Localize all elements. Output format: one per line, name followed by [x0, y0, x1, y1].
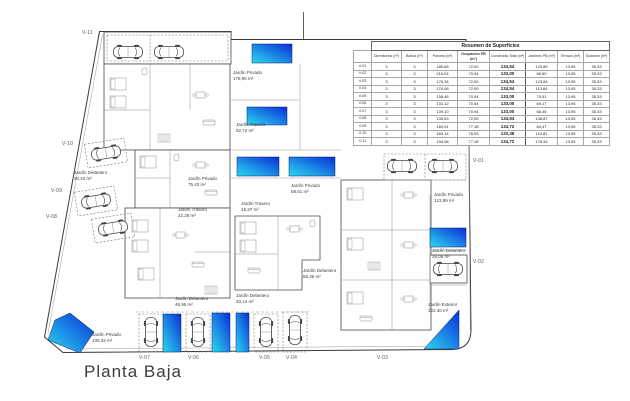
value-cell: 13,95	[558, 108, 584, 116]
column-header: Baños (nº)	[402, 51, 428, 63]
value-cell: 3	[402, 85, 428, 93]
garden-label-name: Jardín Privado	[188, 176, 217, 182]
value-cell: 175,34	[428, 78, 458, 86]
summary-table: Resumen de Superficies Dormitorios (nº)B…	[353, 41, 610, 146]
value-cell: 77,18	[458, 138, 490, 146]
bed-icon	[347, 188, 363, 200]
value-cell: 3	[402, 78, 428, 86]
value-cell: 13,95	[558, 123, 584, 131]
value-cell: 113,81	[526, 130, 558, 138]
summary-table-header-row: Dormitorios (nº)Baños (nº)Parcela (m²)Oc…	[354, 51, 610, 63]
road-label: V-06	[188, 355, 199, 361]
car-icon	[191, 318, 205, 347]
unit-id: V-01	[354, 63, 372, 71]
value-cell: 70,94	[458, 93, 490, 101]
garden-label: Jardín Privado130,32 m²	[92, 332, 121, 343]
garden-label-name: Jardín Trasero	[241, 201, 270, 207]
value-cell: 3	[402, 138, 428, 146]
pool	[212, 313, 230, 352]
garden-label: Jardín Delantero33,14 m²	[236, 293, 269, 304]
column-header: Dormitorios (nº)	[372, 51, 402, 63]
unit-id: V-04	[354, 85, 372, 93]
value-cell: 169,14	[428, 130, 458, 138]
unit-id: V-11	[354, 138, 372, 146]
garden-label: Jardín Privado179,95 m²	[233, 70, 262, 81]
road-label: V-10	[62, 141, 73, 147]
value-cell: 3	[372, 85, 402, 93]
unit-id: V-05	[354, 93, 372, 101]
value-cell: 3	[402, 130, 428, 138]
garden-label-area: 58,61 m²	[291, 189, 320, 195]
value-cell: 135,63	[428, 115, 458, 123]
garden-label: Jardín Trasero92,72 m²	[236, 122, 265, 133]
value-cell: 72,00	[458, 63, 490, 71]
value-cell: 35,33	[584, 78, 610, 86]
value-cell: 35,33	[584, 100, 610, 108]
bed-icon	[240, 222, 256, 234]
column-header	[354, 51, 372, 63]
building-block	[341, 180, 431, 330]
value-cell: 123,89	[526, 63, 558, 71]
value-cell: 3	[402, 123, 428, 131]
garden-label: Jardín Delantero46,95 m²	[175, 296, 208, 307]
garden-label-name: Jardín Delantero	[74, 170, 107, 176]
bed-icon	[138, 268, 154, 280]
garden-label-name: Jardín Privado	[434, 192, 463, 198]
value-cell: 216,04	[428, 70, 458, 78]
garden-label: Jardín Exterior122,40 m²	[428, 302, 457, 313]
value-cell: 68,50	[526, 70, 558, 78]
road-label: V-04	[286, 355, 297, 361]
value-cell: 3	[372, 93, 402, 101]
garden-label-name: Jardín Exterior	[428, 302, 457, 308]
value-cell: 35,33	[584, 130, 610, 138]
value-cell: 35,33	[584, 70, 610, 78]
value-cell: 3	[372, 70, 402, 78]
garden-label: Jardín Privado75,43 m²	[188, 176, 217, 187]
value-cell: 72,00	[458, 78, 490, 86]
road-label: V-09	[51, 188, 62, 194]
garden-label-area: 33,14 m²	[236, 299, 269, 305]
unit-id: V-09	[354, 123, 372, 131]
unit-id: V-06	[354, 100, 372, 108]
value-cell: 35,33	[584, 108, 610, 116]
column-header: Solarium (m²)	[584, 51, 610, 63]
garden-label-area: 92,72 m²	[236, 128, 265, 134]
table-row: V-0733139,1070,94133,0068,4613,9535,33	[354, 108, 610, 116]
value-cell: 3	[402, 93, 428, 101]
value-cell: 70,94	[458, 100, 490, 108]
bed-icon	[110, 78, 126, 90]
value-cell: 113,84	[526, 85, 558, 93]
pool	[289, 157, 335, 176]
road-label: V-05	[259, 355, 270, 361]
car-icon	[98, 219, 129, 238]
value-cell: 35,33	[584, 115, 610, 123]
value-cell: 3	[402, 70, 428, 78]
value-cell: 3	[372, 100, 402, 108]
value-cell: 13,95	[558, 93, 584, 101]
pool	[252, 44, 292, 63]
value-cell: 77,18	[458, 123, 490, 131]
table-row: V-0933169,0177,18134,7284,4713,9535,33	[354, 123, 610, 131]
unit-id: V-02	[354, 70, 372, 78]
value-cell: 131,12	[428, 100, 458, 108]
bed-icon	[140, 156, 156, 168]
car-icon	[259, 318, 273, 347]
bed-icon	[132, 220, 148, 232]
garden-label-name: Jardín Delantero	[432, 248, 465, 254]
bed-icon	[240, 240, 256, 252]
car-icon	[429, 159, 458, 173]
garden-label-name: Jardín Trasero	[236, 122, 265, 128]
value-cell: 76,53	[458, 130, 490, 138]
value-cell: 133,00	[490, 100, 526, 108]
value-cell: 3	[402, 63, 428, 71]
value-cell: 169,01	[428, 123, 458, 131]
value-cell: 134,72	[490, 123, 526, 131]
garden-label: Jardín Delantero35,05 m²	[432, 248, 465, 259]
garden-label-area: 46,95 m²	[175, 302, 208, 308]
garden-label-area: 75,43 m²	[188, 182, 217, 188]
garden-label: Jardín Trasero22,28 m²	[178, 207, 207, 218]
garden-label: Jardín Trasero19,37 m²	[241, 201, 270, 212]
value-cell: 70,94	[458, 108, 490, 116]
value-cell: 69,17	[526, 100, 558, 108]
sofa-icon	[248, 268, 260, 273]
sofa-icon	[192, 262, 204, 267]
table-title: Resumen de Superficies	[372, 42, 610, 51]
value-cell: 194,08	[428, 138, 458, 146]
value-cell: 133,00	[490, 70, 526, 78]
value-cell: 3	[402, 100, 428, 108]
value-cell: 180,68	[428, 63, 458, 71]
value-cell: 13,95	[558, 115, 584, 123]
road-label: V-01	[473, 158, 484, 164]
garden-label-area: 35,05 m²	[432, 254, 465, 260]
value-cell: 35,33	[584, 123, 610, 131]
unit-id: V-10	[354, 130, 372, 138]
unit-id: V-03	[354, 78, 372, 86]
garden-label-name: Jardín Delantero	[303, 268, 336, 274]
road-label: V-03	[377, 355, 388, 361]
value-cell: 75,51	[526, 93, 558, 101]
garden-label-area: 55,36 m²	[303, 274, 336, 280]
value-cell: 13,95	[558, 70, 584, 78]
column-header: Terraza (m²)	[558, 51, 584, 63]
value-cell: 35,33	[584, 138, 610, 146]
corner-cell	[354, 42, 372, 51]
value-cell: 133,00	[490, 108, 526, 116]
car-icon	[81, 192, 112, 211]
garden-label-name: Jardín Privado	[233, 70, 262, 76]
value-cell: 3	[372, 108, 402, 116]
value-cell: 13,95	[558, 63, 584, 71]
value-cell: 35,33	[584, 85, 610, 93]
table-row: V-0533158,4670,94133,0075,5113,9535,33	[354, 93, 610, 101]
road-label: V-11	[82, 30, 93, 36]
table-title-row: Resumen de Superficies	[354, 42, 610, 51]
value-cell: 35,33	[584, 93, 610, 101]
bed-icon	[347, 292, 363, 304]
sofa-icon	[360, 316, 372, 321]
value-cell: 13,95	[558, 78, 584, 86]
toilet-icon	[174, 154, 179, 161]
table-row: V-0133180,6872,00134,54123,8913,9535,33	[354, 63, 610, 71]
value-cell: 13,95	[558, 138, 584, 146]
table-row: V-0333175,3472,00134,54123,8413,9535,33	[354, 78, 610, 86]
floorplan-sheet: Resumen de Superficies Dormitorios (nº)B…	[0, 0, 630, 401]
garden-label-area: 19,37 m²	[241, 207, 270, 213]
value-cell: 134,54	[490, 85, 526, 93]
garden-label-area: 130,32 m²	[92, 338, 121, 344]
toilet-icon	[142, 68, 147, 75]
unit-id: V-08	[354, 115, 372, 123]
garden-label: Jardín Delantero30,24 m²	[74, 170, 107, 181]
value-cell: 68,46	[526, 108, 558, 116]
garden-label-name: Jardín Privado	[291, 183, 320, 189]
value-cell: 3	[372, 115, 402, 123]
unit-id: V-07	[354, 108, 372, 116]
value-cell: 35,33	[584, 63, 610, 71]
stairs-icon	[205, 286, 217, 294]
garden-label-area: 123,89 m²	[434, 198, 463, 204]
value-cell: 134,54	[490, 115, 526, 123]
garden-label-area: 122,40 m²	[428, 308, 457, 314]
pool	[236, 313, 249, 352]
garden-label: Jardín Privado58,61 m²	[291, 183, 320, 194]
garden-label-name: Jardín Privado	[92, 332, 121, 338]
value-cell: 170,08	[428, 85, 458, 93]
car-icon	[288, 316, 302, 345]
stairs-icon	[368, 262, 380, 270]
road-label: V-07	[139, 355, 150, 361]
table-row: V-1133194,0877,18134,72178,4413,9535,33	[354, 138, 610, 146]
table-row: V-0233216,0470,94133,0068,5013,9535,33	[354, 70, 610, 78]
garden-label-area: 30,24 m²	[74, 176, 107, 182]
value-cell: 3	[372, 138, 402, 146]
column-header: Jardines PB (m²)	[526, 51, 558, 63]
table-row: V-0833135,6372,00134,54138,8713,9535,33	[354, 115, 610, 123]
pool	[48, 313, 94, 353]
car-icon	[388, 159, 417, 173]
plan-title: Planta Baja	[84, 362, 182, 382]
value-cell: 13,95	[558, 130, 584, 138]
value-cell: 3	[372, 130, 402, 138]
value-cell: 138,87	[526, 115, 558, 123]
pool	[237, 157, 279, 176]
pool	[430, 228, 466, 247]
value-cell: 70,94	[458, 70, 490, 78]
pool	[163, 314, 181, 352]
value-cell: 72,00	[458, 85, 490, 93]
bed-icon	[132, 240, 148, 252]
column-header: Parcela (m²)	[428, 51, 458, 63]
value-cell: 134,72	[490, 138, 526, 146]
value-cell: 3	[372, 123, 402, 131]
bed-icon	[347, 238, 363, 250]
value-cell: 133,00	[490, 93, 526, 101]
garden-label: Jardín Delantero55,36 m²	[303, 268, 336, 279]
table-row: V-0633131,1270,94133,0069,1713,9535,33	[354, 100, 610, 108]
road-label: V-02	[473, 259, 484, 265]
value-cell: 123,84	[526, 78, 558, 86]
table-row: V-0433170,0872,00134,54113,8413,9535,33	[354, 85, 610, 93]
value-cell: 72,00	[458, 115, 490, 123]
summary-table-body: V-0133180,6872,00134,54123,8913,9535,33V…	[354, 63, 610, 146]
car-icon	[434, 262, 463, 276]
table-row: V-1033169,1476,53133,38113,8113,9535,33	[354, 130, 610, 138]
car-icon	[155, 45, 184, 59]
garden-label: Jardín Privado123,89 m²	[434, 192, 463, 203]
garden-label-name: Jardín Trasero	[178, 207, 207, 213]
value-cell: 3	[402, 115, 428, 123]
value-cell: 3	[372, 78, 402, 86]
value-cell: 13,95	[558, 100, 584, 108]
value-cell: 134,54	[490, 78, 526, 86]
value-cell: 13,95	[558, 85, 584, 93]
car-icon	[114, 45, 143, 59]
value-cell: 3	[402, 108, 428, 116]
garden-label-area: 22,28 m²	[178, 213, 207, 219]
value-cell: 139,10	[428, 108, 458, 116]
value-cell: 3	[372, 63, 402, 71]
garden-label-name: Jardín Delantero	[236, 293, 269, 299]
value-cell: 134,54	[490, 63, 526, 71]
garden-label-area: 179,95 m²	[233, 76, 262, 82]
column-header: Construida Total (m²)	[490, 51, 526, 63]
stairs-icon	[158, 134, 170, 142]
value-cell: 133,38	[490, 130, 526, 138]
bed-icon	[110, 96, 126, 108]
car-icon	[144, 318, 158, 347]
road-label: V-08	[46, 214, 57, 220]
value-cell: 158,46	[428, 93, 458, 101]
toilet-icon	[310, 220, 315, 227]
garden-label-name: Jardín Delantero	[175, 296, 208, 302]
value-cell: 84,47	[526, 123, 558, 131]
column-header: Ocupación PB (m²)	[458, 51, 490, 63]
sofa-icon	[203, 120, 215, 125]
value-cell: 178,44	[526, 138, 558, 146]
sofa-icon	[205, 190, 217, 195]
